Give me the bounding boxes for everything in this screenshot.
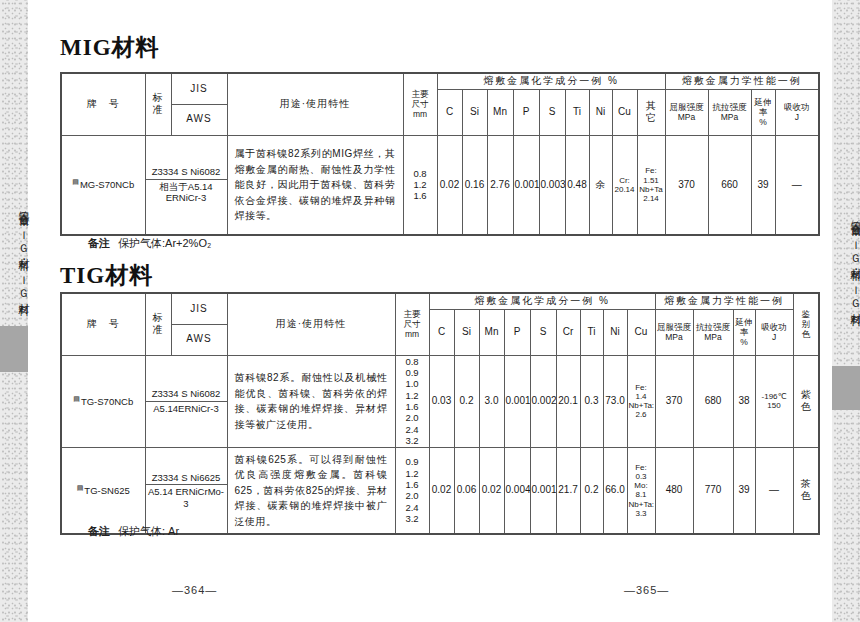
tig-mech-col-tensile: 抗拉强度 MPa (693, 309, 733, 355)
left-sidebar-highlight-band (0, 326, 28, 372)
mig-chem-col-s: S (539, 89, 565, 135)
tig-row1-standard: Z3334 S Ni6082 A5.14ERNiCr-3 (145, 355, 227, 447)
mig-row-absorbed: — (775, 135, 819, 235)
mig-col-header-usage: 用途·使用特性 (227, 73, 403, 135)
mig-note-label: 备注 (88, 237, 110, 249)
right-sidebar-highlight-band (832, 366, 860, 410)
tig-row1-brand-text: TG-S70NCb (81, 396, 133, 407)
tig-col-header-size: 主要 尺寸 mm (395, 293, 429, 355)
tig-row1-p: 0.001 (504, 355, 530, 447)
right-sidebar-label: 镍合金（ＭＩＧ材料・ＴＩＧ材料） (833, 212, 860, 310)
tig-note-text: 保护气体: Ar (118, 525, 179, 537)
mig-row-tensile: 660 (708, 135, 751, 235)
mig-mech-col-absorbed: 吸收功 J (775, 89, 819, 135)
tig-col-header-standard: 标 准 (145, 293, 171, 355)
tig-row1-jis-value: Z3334 S Ni6082 (146, 387, 227, 401)
mig-brand-text: MG-S70NCb (80, 179, 134, 190)
tig-chem-col-c: C (429, 309, 454, 355)
tig-note-label: 备注 (88, 525, 110, 537)
tig-row2-ni: 66.0 (603, 447, 627, 534)
mig-col-header-brand: 牌 号 (61, 73, 145, 135)
mig-mech-group-header: 熔敷金属力学性能一例 (665, 73, 819, 89)
tig-mech-group-header: 熔敷金属力学性能一例 (655, 293, 793, 309)
tig-row2-sizes: 0.9 1.2 1.6 2.0 2.4 3.2 (395, 447, 429, 534)
tig-col-header-usage: 用途·使用特性 (227, 293, 395, 355)
tig-note: 备注保护气体: Ar (88, 524, 179, 539)
tig-col-header-aws: AWS (171, 324, 227, 355)
mig-note: 备注保护气体:Ar+2%O₂ (88, 236, 211, 251)
tig-chem-col-cu: Cu (627, 309, 655, 355)
tig-row2-standard: Z3334 S Ni6625 A5.14 ERNiCrMo-3 (145, 447, 227, 534)
tig-row2-p: 0.004 (504, 447, 530, 534)
mig-chem-col-other: 其 它 (637, 89, 665, 135)
tig-row1-c: 0.03 (429, 355, 454, 447)
tig-row2-c: 0.02 (429, 447, 454, 534)
mig-note-text: 保护气体:Ar+2%O₂ (118, 237, 211, 249)
mig-row-other: Fe: 1.51 Nb+Ta 2.14 (637, 135, 665, 235)
tig-row1-usage: 茵科镍82系。耐蚀性以及机械性能优良、茵科镍、茵科劳依的焊接、碳素钢的堆焊焊接、… (227, 355, 395, 447)
tig-row2-color: 茶 色 (793, 447, 819, 534)
tig-chem-col-s: S (530, 309, 556, 355)
tig-row2-si: 0.06 (454, 447, 479, 534)
page-number-right: —365— (624, 584, 669, 596)
tig-col-header-brand: 牌 号 (61, 293, 145, 355)
mig-col-header-size: 主要 尺寸 mm (403, 73, 437, 135)
mig-row-brand: ▤MG-S70NCb (61, 135, 145, 235)
mig-chem-col-ni: Ni (589, 89, 612, 135)
mig-chem-col-cu: Cu (612, 89, 637, 135)
tig-mech-col-elongation: 延伸 率 % (733, 309, 755, 355)
right-margin-texture (832, 0, 860, 622)
tig-row1-aws-value: A5.14ERNiCr-3 (146, 402, 227, 415)
mig-row-ti: 0.48 (565, 135, 589, 235)
mig-col-header-standard: 标 准 (145, 73, 171, 135)
tig-row2-s: 0.001 (530, 447, 556, 534)
tig-chem-col-cr: Cr (556, 309, 580, 355)
mig-chem-col-si: Si (462, 89, 487, 135)
left-margin-texture (0, 0, 28, 622)
mig-row-aws-value: 相当于A5.14 ERNiCr-3 (146, 180, 227, 205)
tig-row2-brand-text: TG-SN625 (84, 485, 129, 496)
tig-chem-col-p: P (504, 309, 530, 355)
mig-row-sizes: 0.8 1.2 1.6 (403, 135, 437, 235)
left-sidebar-label: 镍合金（ＭＩＧ材料・ＴＩＧ材料） (1, 202, 29, 300)
mig-mech-col-elongation: 延伸 率 % (751, 89, 775, 135)
tig-row2-mn: 0.02 (479, 447, 504, 534)
mig-row-ni: 余 (589, 135, 612, 235)
mig-row-usage: 属于茵科镍82系列的MIG焊丝，其熔敷金属的耐热、耐蚀性及力学性能良好，因此用于… (227, 135, 403, 235)
mig-col-header-jis: JIS (171, 73, 227, 104)
mig-row-standard: Z3334 S Ni6082 相当于A5.14 ERNiCr-3 (145, 135, 227, 235)
tig-row1-tensile: 680 (693, 355, 733, 447)
brand-trademark-icon: ▤ (73, 395, 80, 402)
mig-chem-col-mn: Mn (487, 89, 513, 135)
mig-row-p: 0.001 (513, 135, 539, 235)
tig-row2-ti: 0.2 (580, 447, 603, 534)
mig-row-cu: Cr: 20.14 (612, 135, 637, 235)
mig-mech-col-tensile: 抗拉强度 MPa (708, 89, 751, 135)
brand-trademark-icon: ▤ (72, 178, 79, 185)
tig-row2-usage: 茵科镍625系。可以得到耐蚀性优良高强度熔敷金属。茵科镍625，茵科劳依825的… (227, 447, 395, 534)
tig-chem-col-mn: Mn (479, 309, 504, 355)
tig-col-header-color: 鉴 别 色 (793, 293, 819, 355)
tig-row1-brand: ▤TG-S70NCb (61, 355, 145, 447)
tig-row2-cr: 21.7 (556, 447, 580, 534)
tig-row2-absorbed: — (755, 447, 793, 534)
mig-materials-table: 牌 号 标 准 JIS 用途·使用特性 主要 尺寸 mm 熔敷金属化学成分一例 … (60, 72, 820, 236)
tig-chem-col-si: Si (454, 309, 479, 355)
catalog-page: 镍合金（ＭＩＧ材料・ＴＩＧ材料） 镍合金（ＭＩＧ材料・ＴＩＧ材料） MIG材料 … (0, 0, 860, 622)
tig-row2-aws-value: A5.14 ERNiCrMo-3 (146, 485, 227, 510)
mig-row-mn: 2.76 (487, 135, 513, 235)
tig-row2-tensile: 770 (693, 447, 733, 534)
tig-mech-col-absorbed: 吸收功 J (755, 309, 793, 355)
tig-row1-color: 紫 色 (793, 355, 819, 447)
tig-row1-absorbed: -196℃ 150 (755, 355, 793, 447)
mig-row-si: 0.16 (462, 135, 487, 235)
tig-section-title: TIG材料 (60, 260, 153, 291)
tig-row1-s: 0.002 (530, 355, 556, 447)
brand-trademark-icon: ▤ (77, 484, 84, 491)
tig-row1-mn: 3.0 (479, 355, 504, 447)
tig-chem-col-ni: Ni (603, 309, 627, 355)
mig-section-title: MIG材料 (60, 32, 160, 63)
tig-row1-cu: Fe: 1.4 Nb+Ta: 2.6 (627, 355, 655, 447)
tig-chem-col-ti: Ti (580, 309, 603, 355)
tig-materials-table: 牌 号 标 准 JIS 用途·使用特性 主要 尺寸 mm 熔敷金属化学成分一例 … (60, 292, 820, 535)
tig-row1-ni: 73.0 (603, 355, 627, 447)
mig-chem-col-ti: Ti (565, 89, 589, 135)
mig-chem-col-c: C (437, 89, 462, 135)
tig-row2-cu: Fe: 0.3 Mo: 8.1 Nb+Ta: 3.3 (627, 447, 655, 534)
mig-row-yield: 370 (665, 135, 708, 235)
mig-row-jis-value: Z3334 S Ni6082 (146, 165, 227, 179)
tig-row1-yield: 370 (655, 355, 693, 447)
tig-row1-ti: 0.3 (580, 355, 603, 447)
tig-row1-elongation: 38 (733, 355, 755, 447)
tig-row2-brand: ▤TG-SN625 (61, 447, 145, 534)
tig-row2-yield: 480 (655, 447, 693, 534)
mig-chem-col-p: P (513, 89, 539, 135)
tig-row1-sizes: 0.8 0.9 1.0 1.2 1.6 2.0 2.4 3.2 (395, 355, 429, 447)
tig-chem-group-header: 熔敷金属化学成分一例 % (429, 293, 655, 309)
mig-row-s: 0.003 (539, 135, 565, 235)
tig-mech-col-yield: 屈服强度 MPa (655, 309, 693, 355)
tig-col-header-jis: JIS (171, 293, 227, 324)
page-number-left: —364— (172, 584, 217, 596)
mig-mech-col-yield: 屈服强度 MPa (665, 89, 708, 135)
tig-row1-si: 0.2 (454, 355, 479, 447)
tig-row2-elongation: 39 (733, 447, 755, 534)
mig-row-c: 0.02 (437, 135, 462, 235)
mig-chem-group-header: 熔敷金属化学成分一例 % (437, 73, 665, 89)
mig-row-elongation: 39 (751, 135, 775, 235)
tig-row1-cr: 20.1 (556, 355, 580, 447)
mig-col-header-aws: AWS (171, 104, 227, 135)
tig-row2-jis-value: Z3334 S Ni6625 (146, 471, 227, 485)
